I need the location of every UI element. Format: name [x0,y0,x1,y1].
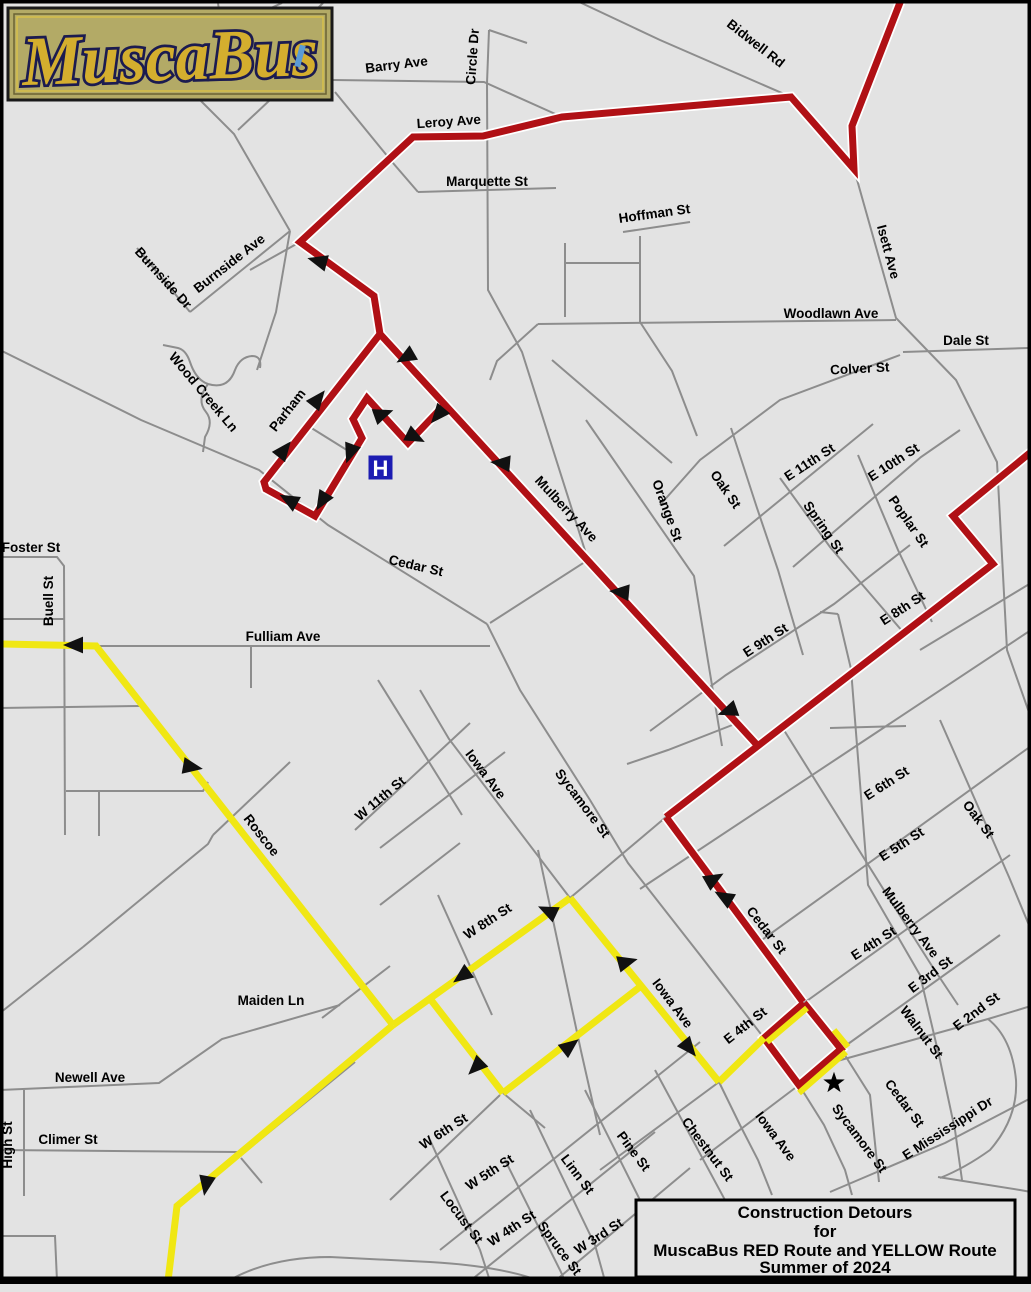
svg-text:Marquette St: Marquette St [446,174,528,189]
svg-text:Dale St: Dale St [943,333,989,348]
svg-text:Fulliam Ave: Fulliam Ave [246,629,321,644]
svg-text:Climer St: Climer St [38,1132,98,1147]
svg-text:Colver St: Colver St [830,359,890,377]
svg-text:Maiden Ln: Maiden Ln [238,993,305,1008]
svg-text:H: H [373,456,389,481]
svg-text:MuscaBus: MuscaBus [20,14,319,101]
svg-text:Newell Ave: Newell Ave [55,1070,126,1085]
svg-text:Woodlawn Ave: Woodlawn Ave [784,306,879,321]
svg-text:Construction Detours: Construction Detours [738,1203,913,1222]
svg-text:Foster St: Foster St [2,540,61,555]
svg-text:for: for [814,1222,837,1241]
svg-text:Summer of 2024: Summer of 2024 [759,1258,891,1277]
svg-text:Buell St: Buell St [41,575,56,626]
